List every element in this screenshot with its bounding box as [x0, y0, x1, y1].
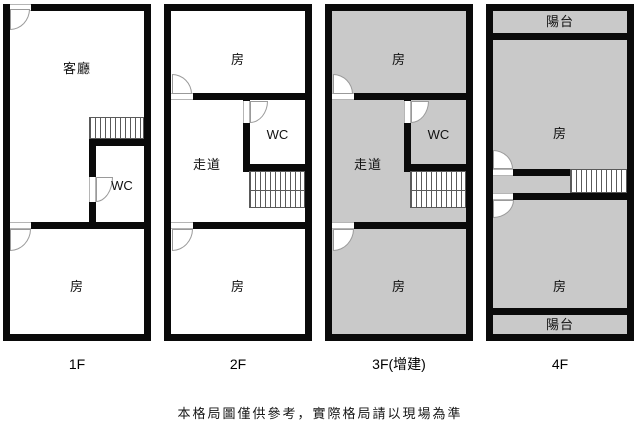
wall — [404, 164, 466, 171]
room-label-corridor: 走道 — [171, 157, 243, 173]
floor-label-3f: 3F(增建) — [325, 356, 473, 372]
floor-label-4f: 4F — [486, 356, 634, 372]
wall — [493, 193, 627, 200]
door-arc-room-top — [493, 150, 513, 169]
door-opening — [10, 222, 31, 229]
room-label-wc: WC — [250, 127, 305, 143]
room-label-room: 房 — [332, 279, 466, 295]
door-arc-wc — [250, 101, 268, 123]
door-arc-room-top — [172, 74, 192, 94]
disclaimer-note: 本格局圖僅供參考，實際格局請以現場為準 — [0, 403, 640, 422]
floorplan-3f: 房 WC 走道 房 — [325, 4, 473, 341]
room-label-balcony-bottom: 陽台 — [493, 317, 627, 333]
door-opening — [89, 177, 96, 202]
room-label-living: 客廳 — [10, 61, 144, 77]
room-label-wc: WC — [100, 178, 144, 194]
room-label-corridor: 走道 — [332, 157, 404, 173]
door-arc-room-bottom — [493, 200, 514, 218]
floorplan-canvas: 客廳 WC 房 1F 房 WC 走道 房 2F 房 — [0, 0, 640, 423]
door-opening — [171, 222, 193, 229]
door-arc-wc — [411, 101, 429, 123]
wall — [243, 164, 305, 171]
stairs — [249, 171, 305, 208]
wall — [493, 308, 627, 315]
door-opening — [493, 193, 513, 200]
door-opening — [171, 93, 193, 100]
room-label-room-top: 房 — [171, 52, 305, 68]
floorplan-1f: 客廳 WC 房 — [3, 4, 151, 341]
stairs — [89, 117, 144, 139]
stairs — [410, 171, 466, 208]
room-label-room: 房 — [10, 279, 144, 295]
door-arc-room-top — [333, 74, 353, 94]
door-arc-room — [333, 229, 354, 251]
floorplan-2f: 房 WC 走道 房 — [164, 4, 312, 341]
room-label-room: 房 — [493, 279, 627, 295]
door-arc-room — [10, 229, 31, 251]
room-label-wc: WC — [411, 127, 466, 143]
wall — [89, 139, 144, 146]
room-label-room-top: 房 — [332, 52, 466, 68]
door-opening — [332, 93, 354, 100]
stairs — [570, 169, 627, 193]
wall — [493, 33, 627, 40]
room-label-room: 房 — [171, 279, 305, 295]
floor-label-2f: 2F — [164, 356, 312, 372]
floorplan-4f: 陽台 房 房 陽台 — [486, 4, 634, 341]
door-arc-room — [172, 229, 193, 251]
door-arc-entrance — [10, 9, 30, 30]
door-opening — [243, 101, 250, 123]
door-opening — [332, 222, 354, 229]
door-opening — [493, 169, 513, 176]
room-label-room-top: 房 — [493, 126, 627, 142]
floor-label-1f: 1F — [3, 356, 151, 372]
room-label-balcony-top: 陽台 — [493, 14, 627, 30]
door-opening — [404, 101, 411, 123]
